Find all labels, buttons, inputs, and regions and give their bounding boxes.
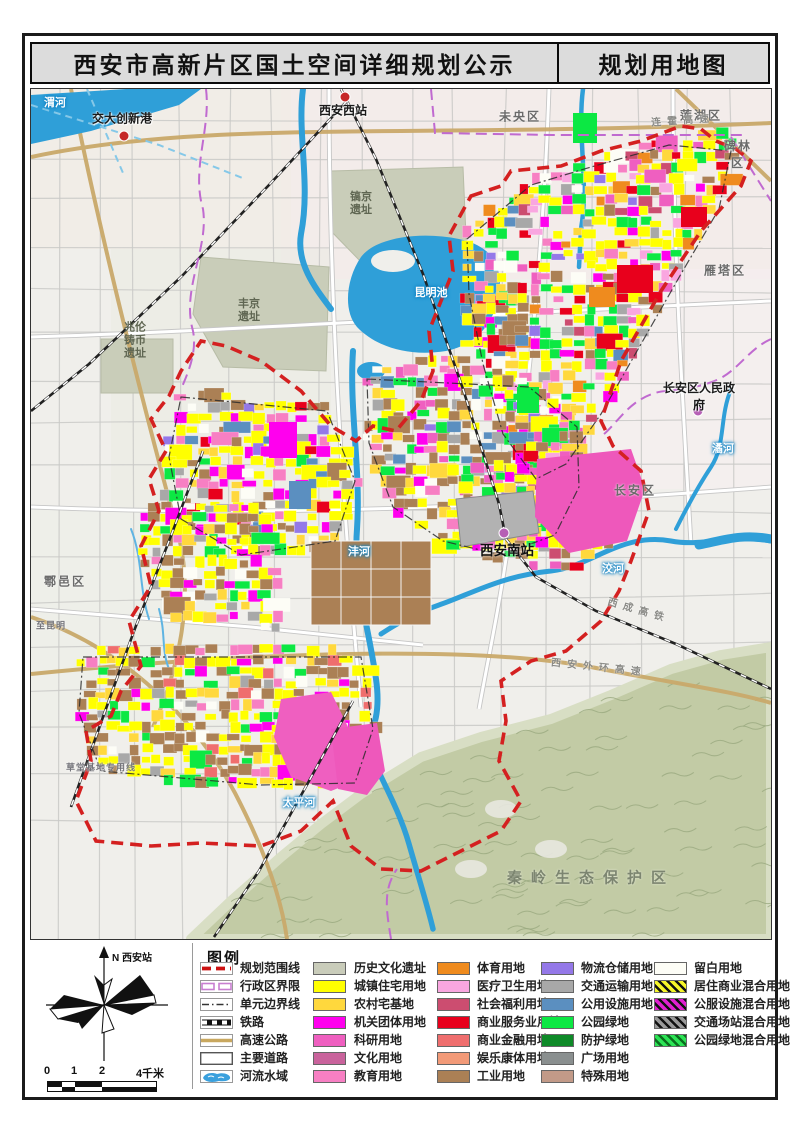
legend-swatch (541, 1016, 574, 1029)
legend-label: 工业用地 (477, 1070, 525, 1083)
legend-label: 铁路 (240, 1016, 264, 1029)
poster-page: 西安市高新片区国土空间详细规划公示 规划用地图 (0, 0, 800, 1131)
legend-swatch (437, 1016, 470, 1029)
legend-swatch (437, 962, 470, 975)
legend-label: 高速公路 (240, 1034, 288, 1047)
legend-label: 教育用地 (354, 1070, 402, 1083)
legend-symbol-railway (200, 1016, 233, 1029)
legend-label: 特殊用地 (581, 1070, 629, 1083)
scale-number: 4千米 (136, 1065, 164, 1081)
legend-swatch (654, 998, 687, 1011)
scale-number: 1 (71, 1065, 77, 1077)
legend-swatch (541, 998, 574, 1011)
map-canvas (31, 89, 771, 939)
legend-label: 居住商业混合用地 (694, 980, 790, 993)
legend-label: 单元边界线 (240, 998, 300, 1011)
legend-label: 医疗卫生用地 (477, 980, 549, 993)
legend-symbol-unit-boundary (200, 998, 233, 1011)
legend-symbol-expressway (200, 1034, 233, 1047)
legend-swatch (313, 1052, 346, 1065)
scale-number: 0 (44, 1065, 50, 1077)
legend-label: 娱乐康体用地 (477, 1052, 549, 1065)
title-bar: 西安市高新片区国土空间详细规划公示 规划用地图 (30, 42, 770, 84)
legend-swatch (437, 1052, 470, 1065)
legend-swatch (541, 1034, 574, 1047)
legend-label: 公园绿地混合用地 (694, 1034, 790, 1047)
legend-swatch (654, 1016, 687, 1029)
legend-swatch (541, 1070, 574, 1083)
legend-label: 河流水域 (240, 1070, 288, 1083)
legend-swatch (437, 980, 470, 993)
legend-symbol-planning-boundary (200, 962, 233, 975)
legend-swatch (541, 1052, 574, 1065)
scale-number: 2 (99, 1065, 105, 1077)
poi-dot (499, 528, 509, 538)
north-label: N 西安站 (112, 949, 152, 964)
page-title: 西安市高新片区国土空间详细规划公示 (32, 44, 557, 82)
legend-label: 农村宅基地 (354, 998, 414, 1011)
legend-swatch (313, 962, 346, 975)
legend-label: 城镇住宅用地 (354, 980, 426, 993)
legend-symbol-water (200, 1070, 233, 1083)
legend-label: 公园绿地 (581, 1016, 629, 1029)
legend-label: 公用设施用地 (581, 998, 653, 1011)
legend-label: 机关团体用地 (354, 1016, 426, 1029)
legend-label: 文化用地 (354, 1052, 402, 1065)
wind-rose-icon (32, 943, 192, 1093)
legend-label: 交通运输用地 (581, 980, 653, 993)
legend-swatch (541, 980, 574, 993)
legend-swatch (313, 1070, 346, 1083)
legend-label: 体育用地 (477, 962, 525, 975)
poi-dot (340, 92, 350, 102)
legend-swatch (654, 980, 687, 993)
panel-divider (192, 943, 193, 1089)
legend-swatch (313, 1016, 346, 1029)
legend-swatch (313, 998, 346, 1011)
legend-swatch (313, 1034, 346, 1047)
legend: 图例 规划范围线行政区界限单元边界线铁路高速公路主要道路河流水域历史文化遗址城镇… (195, 941, 770, 1093)
legend-label: 规划范围线 (240, 962, 300, 975)
legend-symbol-admin-boundary (200, 980, 233, 993)
legend-swatch (437, 998, 470, 1011)
poi-dot (693, 406, 703, 416)
legend-label: 主要道路 (240, 1052, 288, 1065)
legend-label: 商业金融用地 (477, 1034, 549, 1047)
page-frame: 西安市高新片区国土空间详细规划公示 规划用地图 (22, 33, 778, 1100)
legend-label: 广场用地 (581, 1052, 629, 1065)
legend-swatch (437, 1034, 470, 1047)
legend-label: 科研用地 (354, 1034, 402, 1047)
legend-label: 社会福利用地 (477, 998, 549, 1011)
compass-block: N 西安站 0124千米 (32, 943, 192, 1093)
legend-label: 防护绿地 (581, 1034, 629, 1047)
legend-swatch (313, 980, 346, 993)
bottom-panel: N 西安站 0124千米 图例 规划范围线行政区界限单元边界线铁路高速公路主要道… (30, 941, 770, 1093)
legend-swatch (654, 962, 687, 975)
legend-label: 物流仓储用地 (581, 962, 653, 975)
legend-label: 历史文化遗址 (354, 962, 426, 975)
legend-label: 留白用地 (694, 962, 742, 975)
poi-dot (119, 131, 129, 141)
legend-symbol-main-road (200, 1052, 233, 1065)
legend-label: 交通场站混合用地 (694, 1016, 790, 1029)
scale-bar (47, 1081, 157, 1092)
planning-map: 渭河昆明池沣河洨河潏河太平河未央区莲湖区碑林区雁塔区长安区鄠邑区交大创新港西安西… (30, 88, 772, 940)
legend-label: 行政区界限 (240, 980, 300, 993)
legend-swatch (437, 1070, 470, 1083)
legend-swatch (654, 1034, 687, 1047)
legend-label: 公服设施混合用地 (694, 998, 790, 1011)
map-type-title: 规划用地图 (557, 44, 768, 82)
legend-swatch (541, 962, 574, 975)
